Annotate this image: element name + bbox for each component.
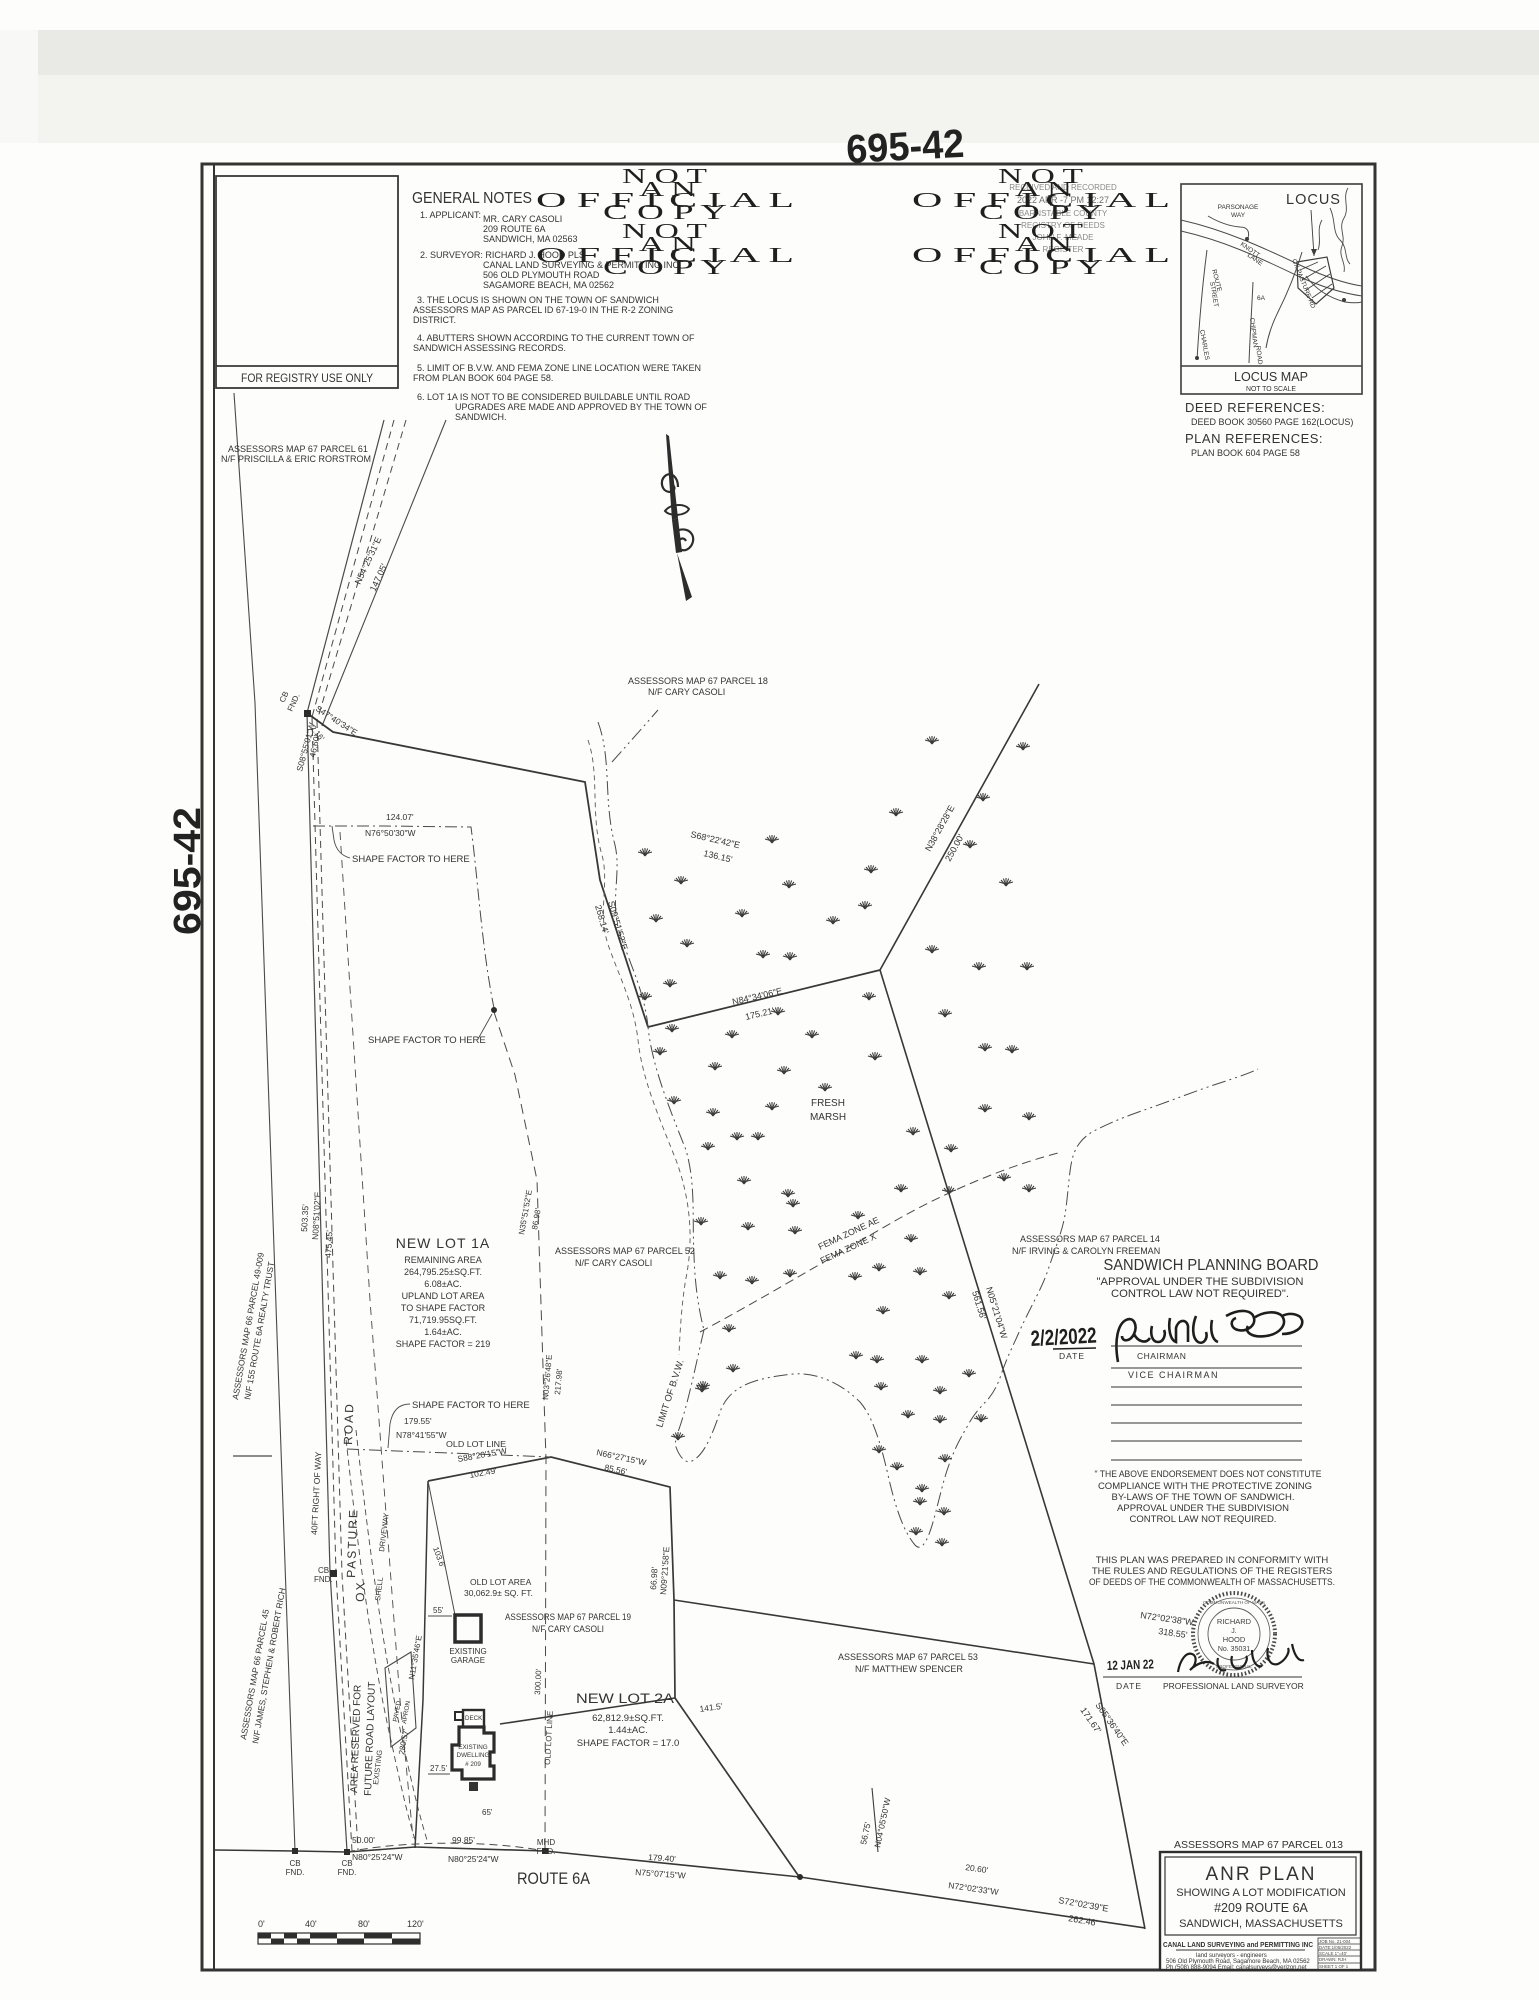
svg-text:DRAWN: RJH: DRAWN: RJH <box>1319 1957 1346 1962</box>
svg-text:CHAIRMAN: CHAIRMAN <box>1137 1351 1186 1361</box>
svg-text:66.98': 66.98' <box>648 1566 660 1590</box>
svg-text:209 ROUTE 6A: 209 ROUTE 6A <box>483 224 546 234</box>
svg-text:N/F IRVING & CAROLYN FREEMAN: N/F IRVING & CAROLYN FREEMAN <box>1012 1246 1160 1256</box>
svg-text:# 209: # 209 <box>465 1761 481 1768</box>
svg-text:SHAPE FACTOR TO HERE: SHAPE FACTOR TO HERE <box>368 1035 486 1046</box>
svg-text:SHOWING A LOT MODIFICATION: SHOWING A LOT MODIFICATION <box>1176 1887 1346 1899</box>
svg-text:ROAD: ROAD <box>341 1402 356 1445</box>
svg-text:MHD: MHD <box>537 1838 555 1847</box>
svg-text:PARSONAGE: PARSONAGE <box>1218 204 1259 211</box>
svg-text:80': 80' <box>358 1919 370 1929</box>
svg-text:FOR REGISTRY USE ONLY: FOR REGISTRY USE ONLY <box>241 373 373 385</box>
svg-text:J.: J. <box>1231 1628 1237 1635</box>
svg-text:5. LIMIT OF B.V.W. AND FEMA ZO: 5. LIMIT OF B.V.W. AND FEMA ZONE LINE LO… <box>417 363 701 373</box>
svg-text:ANR PLAN: ANR PLAN <box>1205 1864 1316 1885</box>
svg-text:TO SHAPE FACTOR: TO SHAPE FACTOR <box>401 1303 486 1313</box>
svg-text:SHAPE FACTOR TO HERE: SHAPE FACTOR TO HERE <box>412 1400 530 1411</box>
svg-text:DWELLING: DWELLING <box>457 1752 490 1759</box>
svg-text:300.00': 300.00' <box>533 1668 543 1695</box>
svg-text:SANDWICH.: SANDWICH. <box>455 412 507 422</box>
svg-text:PLAN REFERENCES:: PLAN REFERENCES: <box>1185 431 1323 446</box>
svg-text:FND.: FND. <box>338 1868 357 1877</box>
svg-text:N/F PRISCILLA & ERIC RORSTROM: N/F PRISCILLA & ERIC RORSTROM <box>221 454 371 464</box>
svg-text:ASSESSORS MAP 67 PARCEL 61: ASSESSORS MAP 67 PARCEL 61 <box>228 444 368 454</box>
svg-text:SHAPE FACTOR = 219: SHAPE FACTOR = 219 <box>396 1339 491 1349</box>
svg-text:C O P Y: C O P Y <box>979 255 1103 279</box>
svg-text:MARSH: MARSH <box>810 1112 846 1123</box>
svg-text:SAGAMORE BEACH, MA 02562: SAGAMORE BEACH, MA 02562 <box>483 280 614 290</box>
svg-text:FRESH: FRESH <box>811 1098 845 1109</box>
svg-text:N/F CARY CASOLI: N/F CARY CASOLI <box>532 1624 604 1634</box>
svg-text:Ph (508) 888-9094 Email: can: Ph (508) 888-9094 Email: canalsurveys@ve… <box>1166 1965 1307 1971</box>
svg-text:ASSESSORS MAP 67 PARCEL 52: ASSESSORS MAP 67 PARCEL 52 <box>555 1246 695 1256</box>
svg-text:PROFESSIONAL LAND SURVEYOR: PROFESSIONAL LAND SURVEYOR <box>1163 1681 1304 1691</box>
svg-text:REMAINING AREA: REMAINING AREA <box>404 1255 482 1265</box>
svg-text:ASSESSORS MAP AS PARCEL ID 67-: ASSESSORS MAP AS PARCEL ID 67-19-0 IN TH… <box>413 305 673 315</box>
svg-text:N80°25'24"W: N80°25'24"W <box>352 1852 403 1862</box>
svg-text:HOOD: HOOD <box>1223 1635 1246 1644</box>
svg-text:120': 120' <box>407 1919 424 1929</box>
svg-text:RICHARD: RICHARD <box>1217 1617 1252 1626</box>
svg-text:N80°25'24"W: N80°25'24"W <box>448 1854 499 1864</box>
svg-text:6. LOT 1A IS NOT TO BE CONSIDE: 6. LOT 1A IS NOT TO BE CONSIDERED BUILDA… <box>417 392 691 402</box>
svg-text:MR. CARY CASOLI: MR. CARY CASOLI <box>483 214 562 224</box>
svg-text:SHEET 1 OF 1: SHEET 1 OF 1 <box>1319 1964 1349 1969</box>
svg-text:40': 40' <box>305 1919 317 1929</box>
svg-text:2/2/2022: 2/2/2022 <box>1030 1323 1097 1351</box>
svg-text:6A: 6A <box>1257 295 1266 302</box>
svg-text:UPLAND LOT AREA: UPLAND LOT AREA <box>402 1291 485 1301</box>
svg-text:1.64±AC.: 1.64±AC. <box>424 1327 461 1337</box>
svg-text:FND.: FND. <box>537 1847 556 1856</box>
svg-text:DISTRICT.: DISTRICT. <box>413 315 456 325</box>
svg-text:179.40': 179.40' <box>648 1852 677 1864</box>
svg-text:THE RULES AND REGULATIONS OF T: THE RULES AND REGULATIONS OF THE REGISTE… <box>1092 1566 1332 1577</box>
svg-text:DATE:1/05/2022: DATE:1/05/2022 <box>1319 1945 1352 1950</box>
svg-text:4. ABUTTERS SHOWN ACCORDING TO: 4. ABUTTERS SHOWN ACCORDING TO THE CURRE… <box>417 333 695 343</box>
svg-text:27.5': 27.5' <box>430 1764 448 1773</box>
svg-text:475.45': 475.45' <box>323 1230 334 1258</box>
svg-text:OF DEEDS OF THE COMMONWEALTH O: OF DEEDS OF THE COMMONWEALTH OF MASSACHU… <box>1089 1577 1335 1588</box>
svg-text:0': 0' <box>258 1919 265 1929</box>
svg-text:DATE: DATE <box>1116 1681 1142 1691</box>
svg-text:FND.: FND. <box>286 1868 305 1877</box>
svg-text:50.00': 50.00' <box>352 1835 375 1845</box>
svg-text:CB: CB <box>289 1859 300 1868</box>
svg-text:DECK: DECK <box>465 1715 483 1722</box>
svg-text:C O P Y: C O P Y <box>603 255 727 279</box>
svg-text:ASSESSORS MAP 67 PARCEL 19: ASSESSORS MAP 67 PARCEL 19 <box>505 1612 631 1622</box>
svg-text:VICE CHAIRMAN: VICE CHAIRMAN <box>1128 1370 1219 1380</box>
svg-text:12 JAN 22: 12 JAN 22 <box>1107 1656 1154 1673</box>
svg-text:FROM PLAN BOOK 604 PAGE 58.: FROM PLAN BOOK 604 PAGE 58. <box>413 373 553 383</box>
svg-text:N/F CARY CASOLI: N/F CARY CASOLI <box>648 687 725 697</box>
svg-text:55': 55' <box>433 1606 444 1615</box>
svg-text:N/F MATTHEW SPENCER: N/F MATTHEW SPENCER <box>855 1664 963 1674</box>
svg-text:CANAL LAND SURVEYING and PERMI: CANAL LAND SURVEYING and PERMITTING INC <box>1163 1940 1313 1949</box>
svg-text:71,719.95SQ.FT.: 71,719.95SQ.FT. <box>409 1315 477 1325</box>
svg-text:N78°41'55"W: N78°41'55"W <box>396 1430 447 1440</box>
svg-text:ASSESSORS MAP 67 PARCEL 14: ASSESSORS MAP 67 PARCEL 14 <box>1020 1234 1160 1244</box>
svg-text:99.85': 99.85' <box>452 1835 475 1845</box>
svg-text:CB: CB <box>341 1859 352 1868</box>
svg-text:N76°50'30"W: N76°50'30"W <box>365 828 416 838</box>
svg-text:179.55': 179.55' <box>404 1416 432 1426</box>
svg-text:WAY: WAY <box>1231 212 1246 219</box>
svg-text:COMPLIANCE WITH THE PROTECTIVE: COMPLIANCE WITH THE PROTECTIVE ZONING <box>1098 1481 1312 1492</box>
svg-text:N/F CARY CASOLI: N/F CARY CASOLI <box>575 1258 652 1268</box>
svg-text:ASSESSORS MAP 67 PARCEL 013: ASSESSORS MAP 67 PARCEL 013 <box>1174 1839 1343 1851</box>
svg-text:62,812.9±SQ.FT.: 62,812.9±SQ.FT. <box>592 1713 664 1724</box>
svg-text:" THE ABOVE ENDORSEMENT DOES N: " THE ABOVE ENDORSEMENT DOES NOT CONSTIT… <box>1095 1469 1322 1480</box>
svg-text:506 OLD PLYMOUTH ROAD: 506 OLD PLYMOUTH ROAD <box>483 270 600 280</box>
svg-text:LOCUS: LOCUS <box>1286 192 1341 208</box>
svg-text:PLAN BOOK 604 PAGE 58: PLAN BOOK 604 PAGE 58 <box>1191 448 1300 458</box>
svg-text:1. APPLICANT:: 1. APPLICANT: <box>420 210 481 220</box>
svg-text:264,795.25±SQ.FT.: 264,795.25±SQ.FT. <box>404 1267 482 1277</box>
svg-text:EXISTING: EXISTING <box>458 1744 487 1751</box>
svg-text:#209 ROUTE 6A: #209 ROUTE 6A <box>1214 1901 1308 1915</box>
svg-text:ASSESSORS MAP 67 PARCEL 53: ASSESSORS MAP 67 PARCEL 53 <box>838 1652 978 1662</box>
svg-text:DATE: DATE <box>1059 1351 1085 1361</box>
svg-text:NEW LOT 2A: NEW LOT 2A <box>576 1691 674 1706</box>
svg-text:CB: CB <box>318 1566 329 1575</box>
svg-text:EXISTING: EXISTING <box>449 1647 486 1656</box>
svg-text:JOB No. 21-004: JOB No. 21-004 <box>1319 1939 1351 1944</box>
svg-text:GENERAL NOTES: GENERAL NOTES <box>412 190 532 207</box>
svg-text:503.35': 503.35' <box>299 1204 310 1232</box>
svg-text:CONTROL LAW NOT REQUIRED".: CONTROL LAW NOT REQUIRED". <box>1111 1288 1289 1300</box>
svg-text:NOT TO SCALE: NOT TO SCALE <box>1246 386 1296 393</box>
svg-text:"APPROVAL UNDER THE SUBDIVISIO: "APPROVAL UNDER THE SUBDIVISION <box>1097 1276 1304 1288</box>
svg-text:GARAGE: GARAGE <box>451 1656 485 1665</box>
svg-text:OX: OX <box>353 1580 368 1602</box>
svg-text:UPGRADES ARE MADE AND APPROVED: UPGRADES ARE MADE AND APPROVED BY THE TO… <box>455 402 707 412</box>
svg-text:No. 35031: No. 35031 <box>1218 1646 1250 1653</box>
svg-text:SHAPE FACTOR = 17.0: SHAPE FACTOR = 17.0 <box>577 1738 680 1749</box>
svg-text:BY-LAWS OF THE TOWN OF SANDWIC: BY-LAWS OF THE TOWN OF SANDWICH. <box>1112 1492 1295 1503</box>
svg-text:65': 65' <box>482 1808 493 1817</box>
svg-text:OLD LOT AREA: OLD LOT AREA <box>470 1577 532 1587</box>
svg-text:LOCUS MAP: LOCUS MAP <box>1234 369 1308 384</box>
svg-text:ASSESSORS MAP 67 PARCEL 18: ASSESSORS MAP 67 PARCEL 18 <box>628 676 768 686</box>
svg-text:SCALE 1"=40': SCALE 1"=40' <box>1319 1951 1347 1956</box>
svg-text:THIS PLAN WAS PREPARED IN CONF: THIS PLAN WAS PREPARED IN CONFORMITY WIT… <box>1096 1555 1329 1566</box>
svg-text:124.07': 124.07' <box>386 812 414 822</box>
svg-text:DEED REFERENCES:: DEED REFERENCES: <box>1185 400 1325 415</box>
svg-text:ROUTE 6A: ROUTE 6A <box>517 1870 590 1888</box>
svg-text:SANDWICH ASSESSING RECORDS.: SANDWICH ASSESSING RECORDS. <box>413 343 566 353</box>
svg-text:SANDWICH, MASSACHUSETTS: SANDWICH, MASSACHUSETTS <box>1179 1918 1343 1930</box>
svg-text:COMMONWEALTH OF MASS: COMMONWEALTH OF MASS <box>1203 1600 1265 1605</box>
svg-text:PASTURE: PASTURE <box>344 1508 360 1578</box>
svg-text:3. THE LOCUS IS SHOWN ON THE T: 3. THE LOCUS IS SHOWN ON THE TOWN OF SAN… <box>417 295 659 305</box>
svg-text:6.08±AC.: 6.08±AC. <box>424 1279 461 1289</box>
svg-text:NEW LOT 1A: NEW LOT 1A <box>396 1235 491 1251</box>
svg-text:DEED BOOK 30560 PAGE 162(LOCUS: DEED BOOK 30560 PAGE 162(LOCUS) <box>1191 417 1353 427</box>
svg-text:1.44±AC.: 1.44±AC. <box>608 1725 648 1736</box>
svg-text:APPROVAL UNDER THE SUBDIVISION: APPROVAL UNDER THE SUBDIVISION <box>1117 1503 1289 1514</box>
svg-text:695-42: 695-42 <box>845 122 965 172</box>
svg-text:FND.: FND. <box>314 1575 333 1584</box>
svg-text:SHAPE FACTOR TO HERE: SHAPE FACTOR TO HERE <box>352 854 470 865</box>
svg-text:SANDWICH PLANNING BOARD: SANDWICH PLANNING BOARD <box>1104 1257 1319 1274</box>
svg-text:695-42: 695-42 <box>167 807 209 935</box>
svg-text:30,062.9± SQ. FT.: 30,062.9± SQ. FT. <box>464 1588 533 1598</box>
svg-text:CONTROL LAW NOT REQUIRED.: CONTROL LAW NOT REQUIRED. <box>1130 1514 1277 1525</box>
